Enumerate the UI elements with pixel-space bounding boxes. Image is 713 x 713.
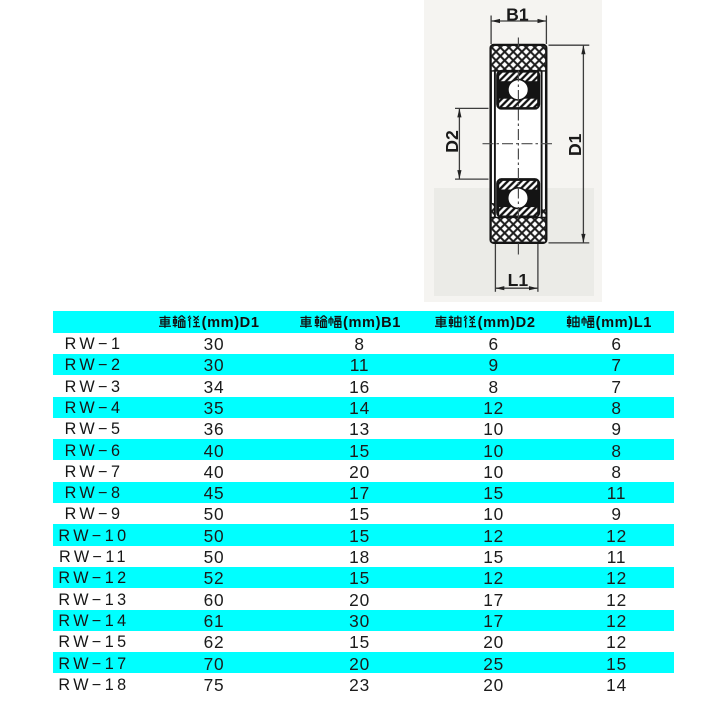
svg-text:D2: D2 <box>442 130 462 153</box>
svg-text:B1: B1 <box>506 4 529 24</box>
svg-text:D1: D1 <box>565 133 585 156</box>
svg-text:L1: L1 <box>508 270 529 290</box>
